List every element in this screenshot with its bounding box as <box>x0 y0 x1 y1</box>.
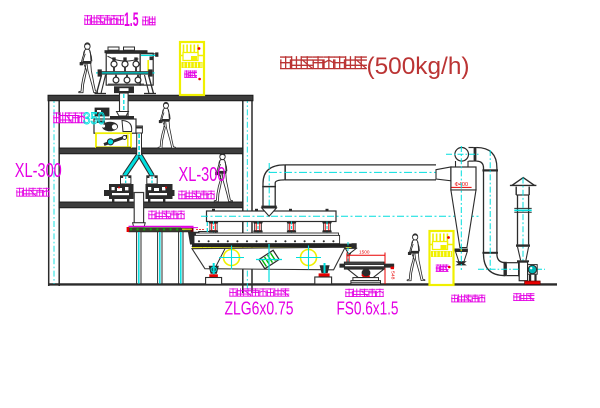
svg-text:XL-300: XL-300 <box>179 164 226 186</box>
svg-text:FS0.6x1.5: FS0.6x1.5 <box>337 299 399 319</box>
svg-text:ZLG6x0.75: ZLG6x0.75 <box>225 299 294 319</box>
svg-text:1500: 1500 <box>359 249 370 255</box>
svg-text:(500kg/h): (500kg/h) <box>367 53 470 80</box>
svg-text:548: 548 <box>390 271 396 280</box>
svg-text:XL-300: XL-300 <box>15 160 62 182</box>
svg-text:350: 350 <box>83 109 105 128</box>
svg-text:1.5: 1.5 <box>124 10 139 31</box>
